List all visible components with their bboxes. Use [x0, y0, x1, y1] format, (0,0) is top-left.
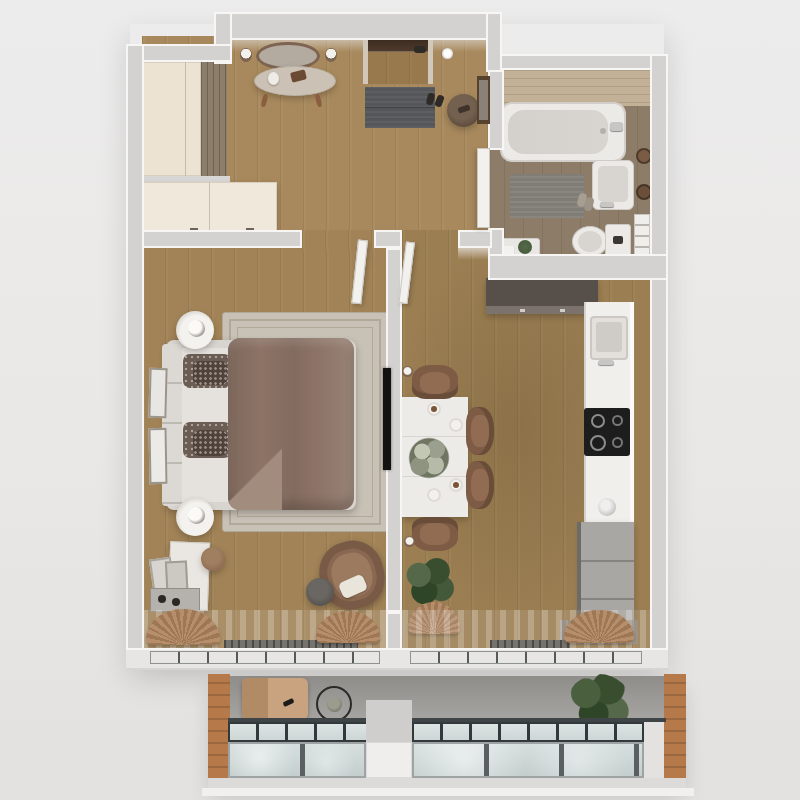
- wall-frame-2: [149, 428, 168, 484]
- wall-hall-kitchen-right: [458, 230, 492, 248]
- lounge-chair-backrest: [242, 678, 268, 720]
- duvet-fold: [228, 448, 282, 510]
- bedroom-stool: [201, 547, 225, 571]
- wall-top-hallway: [214, 12, 502, 40]
- burner-2: [612, 415, 623, 426]
- wash-basin-bowl: [598, 166, 628, 202]
- sconce-left: [240, 48, 252, 62]
- doormat-seam: [365, 107, 435, 108]
- wall-door-pillar: [374, 230, 402, 248]
- wall-hall-bath-link: [486, 12, 502, 72]
- bath-mat: [510, 174, 584, 218]
- plate-food-2: [453, 482, 459, 488]
- burner-1: [591, 414, 605, 428]
- dark-cabinet-face: [486, 306, 598, 314]
- wall-left: [126, 44, 144, 670]
- balustrade-lower-left: [228, 742, 366, 778]
- knit-pouf: [306, 578, 334, 606]
- plate-4: [427, 488, 441, 502]
- shoe-tray-item-1: [158, 595, 166, 603]
- pillow-small-top: [193, 361, 227, 385]
- window-frame-kitchen: [410, 651, 642, 664]
- plate-food-1: [431, 406, 437, 412]
- plate-2: [449, 418, 463, 432]
- hallway-sideboard: [143, 182, 277, 236]
- pillow-small-bottom: [193, 430, 227, 456]
- wall-bathroom-left-upper: [488, 70, 504, 150]
- console-vase: [268, 72, 279, 85]
- wall-bathroom-bottom: [488, 254, 668, 280]
- balustrade-upper-left: [228, 722, 368, 742]
- bath-plant: [518, 240, 532, 254]
- bathroom-wall-paneling: [504, 70, 652, 106]
- dark-cabinet-knobs: [520, 309, 525, 312]
- kitchen-faucet: [598, 360, 614, 365]
- induction-cooktop: [584, 408, 630, 456]
- basin-faucet: [600, 202, 614, 207]
- kettle: [598, 498, 616, 516]
- kitchen-sink-bowl: [596, 322, 622, 352]
- toilet-button: [613, 236, 623, 244]
- kitchen-sconce-1: [402, 366, 413, 377]
- bedroom-wall-tv: [383, 368, 391, 470]
- chair-cushion-right-1: [471, 415, 489, 447]
- ceiling-lamp: [442, 48, 453, 59]
- toilet-seat: [578, 231, 602, 252]
- lamp-top: [188, 320, 205, 337]
- entry-recess-side-left: [363, 40, 368, 84]
- wall-bathroom-top: [490, 54, 668, 70]
- towel-ladder: [634, 214, 650, 258]
- balustrade-lower-right: [412, 742, 644, 778]
- entry-recess-side-right: [428, 40, 433, 84]
- lamp-bottom: [188, 507, 205, 524]
- burner-3: [590, 435, 606, 451]
- hallway-tall-wardrobe: [141, 62, 201, 176]
- chair-cushion-top: [420, 372, 450, 394]
- balcony-table-plant: [327, 697, 342, 712]
- shoe-tray-item-2: [172, 598, 180, 606]
- sideboard-seam: [209, 182, 210, 236]
- bathtub-faucet: [610, 122, 623, 131]
- balcony-outer-edge: [202, 788, 694, 796]
- window-frame-bedroom: [150, 651, 380, 664]
- entry-shoes-in-recess: [414, 46, 426, 53]
- bathroom-door-open: [477, 148, 490, 228]
- burner-4: [612, 437, 623, 448]
- balcony-wood-left: [208, 674, 230, 780]
- floral-centerpiece: [406, 436, 452, 480]
- balcony-pillar-white: [366, 742, 412, 778]
- bathroom-doorway-floor: [488, 150, 504, 228]
- wall-divider-window-stub: [386, 612, 402, 652]
- balcony-center-pillar: [366, 700, 412, 744]
- hallway-leaning-mirror-glass: [479, 80, 488, 120]
- kitchen-wall-face: [458, 248, 492, 260]
- floor-plan: [0, 0, 800, 800]
- wall-right: [650, 54, 668, 670]
- chair-cushion-right-2: [471, 469, 489, 501]
- sconce-right: [325, 48, 337, 62]
- balustrade-upper-right: [412, 722, 644, 742]
- chair-cushion-bottom: [420, 523, 450, 545]
- wardrobe-door-seam: [185, 62, 186, 176]
- wall-frame-1: [148, 368, 167, 418]
- bathtub-drain: [600, 128, 606, 134]
- bathtub-basin: [508, 110, 608, 154]
- wardrobe-slatted-panel: [201, 62, 227, 176]
- wall-hall-bedroom: [142, 230, 302, 248]
- kitchen-sconce-2: [404, 536, 415, 547]
- balcony-wood-right: [664, 674, 686, 780]
